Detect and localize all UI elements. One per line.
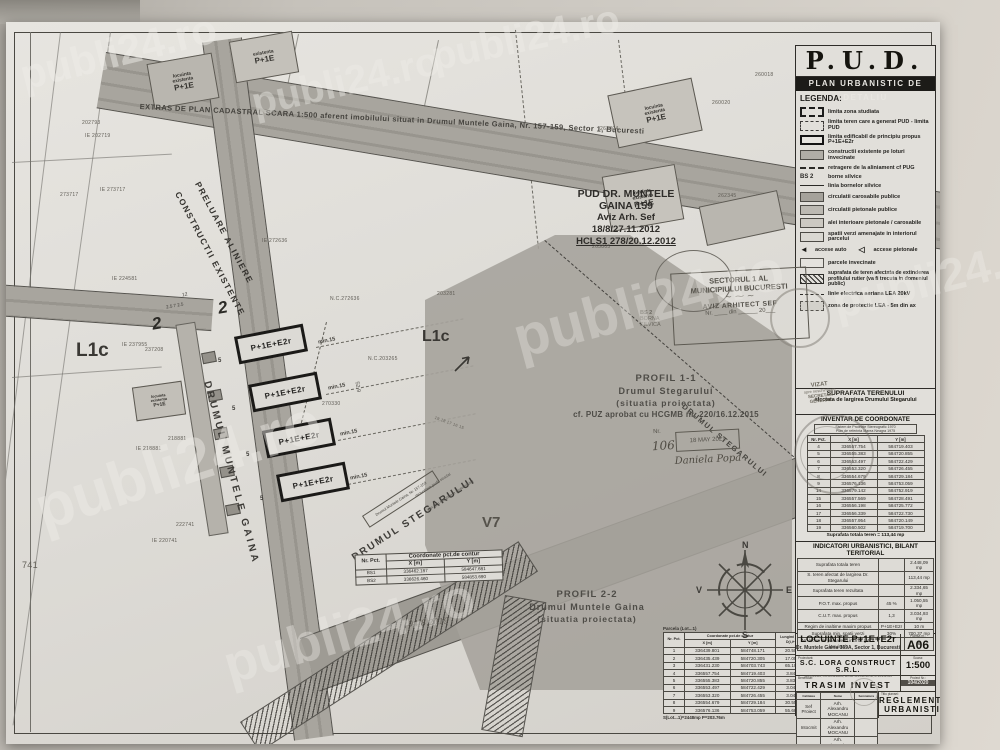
legend-item: alei interioare pietonale / carosabile: [796, 218, 935, 228]
table-cell: 45 %: [878, 597, 904, 610]
table-cell: 584720.855: [730, 677, 776, 684]
table-cell: 336555.383: [685, 677, 731, 684]
table-cell: 5: [664, 677, 685, 684]
table-row: P.O.T. max. propus45 %1.050,55 mp: [798, 597, 934, 610]
profile-dim-12: 12: [182, 292, 189, 299]
profil-line: Drumul Muntele Gaina: [492, 601, 682, 613]
legend-label: zona de protectie LEA - 5m din ax: [828, 303, 916, 309]
scara-value: 1:500: [901, 660, 935, 671]
table-cell: 584753.059: [730, 707, 776, 714]
setback-dim: 5: [260, 496, 263, 502]
plan-sheet: locuinta existenta P+1E existenta P+1E l…: [6, 22, 940, 744]
legend-label: alei interioare pietonale / carosabile: [828, 220, 921, 226]
round-stamp: [850, 678, 878, 706]
table-cell: 336576.136: [685, 707, 731, 714]
parcel-number: IE 273717: [100, 187, 126, 193]
profil-line: (situatia proiectata): [492, 613, 682, 625]
legend-symbol-solid-line: [800, 185, 824, 186]
round-stamp: [800, 426, 854, 480]
table-cell: [878, 571, 904, 584]
table-cell: 336626.460: [387, 574, 445, 583]
table-cell: 4: [664, 670, 685, 677]
plansa-number: A06: [901, 638, 935, 652]
legend-label: circulatii pietonale publice: [828, 207, 897, 213]
table-row: 6336553.497584722.4293.040: [664, 684, 809, 691]
existing-label: P+1E: [153, 402, 166, 409]
table-cell: 584722.429: [730, 684, 776, 691]
table-cell: 10 m: [905, 623, 934, 630]
table-cell: 584719.403: [730, 670, 776, 677]
parcel-number: 237208: [145, 347, 164, 353]
table-row: 1336439.801584748.17120.506: [664, 647, 809, 654]
parcel-number: N.C.272636: [330, 296, 360, 302]
compass-e: E: [786, 585, 792, 595]
table-row: 3336431.230584703.74365.108: [664, 662, 809, 669]
table-cell: 336556.339: [830, 510, 877, 517]
table-row: S. teren afectat de largirea Dr. Stegaru…: [798, 571, 934, 584]
legend-label: limita zona studiata: [828, 109, 879, 115]
table-cell: 584753.059: [877, 480, 924, 487]
table-cell: P.O.T. max. propus: [798, 597, 879, 610]
legend-item: BS 2borne silvice: [796, 174, 935, 180]
proposed-building-label: P+1E+E2r: [250, 336, 292, 353]
parcel-number: N.C.203265: [368, 356, 398, 362]
zone-label-v7: V7: [482, 514, 500, 531]
parcel-number: 203281: [437, 291, 456, 297]
parcel-number: 273717: [60, 192, 79, 198]
indicatori-section: INDICATORI URBANISTICI, BILANT TERITORIA…: [796, 542, 935, 634]
setback-dim: 5: [246, 452, 249, 458]
table-cell: 3: [664, 662, 685, 669]
parcel-number: 263804: [600, 126, 619, 132]
legend-label: linie electrica aeriana LEA 20kV: [828, 291, 910, 297]
profil-line: (situatia proiectata): [546, 397, 786, 409]
table-cell: 584720.305: [730, 655, 776, 662]
photo-corner-shadow: [0, 0, 140, 24]
col-header: Nr. Pct.: [355, 554, 386, 570]
table-row: Suprafata teren rezultata2.334,65 mp: [798, 584, 934, 597]
parcel-number: 270330: [322, 401, 341, 407]
table-cell: Arh. Alexandru MOCANU: [821, 700, 855, 718]
table-cell: C.U.T. max. propus: [798, 610, 879, 623]
compass-v: V: [696, 585, 702, 595]
legend-symbol-road: [800, 192, 824, 202]
table-cell: 584725.772: [877, 502, 924, 509]
parcela-table-footer: S(Lot...1)=2448mp P=203.76m: [663, 715, 809, 720]
table-cell: 336553.320: [685, 692, 731, 699]
table-row: 8336554.679584729.18430.550: [664, 699, 809, 706]
legend-label: spatii verzi amenajate in interiorul par…: [828, 232, 931, 244]
existing-label: P+1E: [254, 55, 274, 64]
table-cell: 2.334,65 mp: [905, 584, 934, 597]
table-cell: Suprafata totala teren: [798, 559, 879, 572]
setback-dim: 5: [218, 358, 221, 364]
table-cell: 336557.569: [830, 495, 877, 502]
legend-item: limita zona studiata: [796, 107, 935, 117]
borna-silvica-note: BS 2 BORNA SILVICA: [640, 310, 661, 328]
parcel-number: 218881: [168, 436, 187, 442]
legend-item: suprafata de teren afectata de extindere…: [796, 271, 935, 288]
table-cell: 584720.855: [877, 450, 924, 457]
parcel-number: IE 220741: [152, 538, 178, 544]
table-cell: 113,44 mp: [905, 571, 934, 584]
table-row: IntocmitArh. Alexandru MOCANU: [797, 718, 878, 736]
legend-label: linia bornelor silvice: [828, 183, 881, 189]
table-cell: 584703.743: [730, 662, 776, 669]
car-access-arrow-icon: ◄: [800, 246, 811, 254]
pud-subtitle-bar: PLAN URBANISTIC DE DETALIU: [796, 77, 935, 91]
table-cell: Suprafata teren rezultata: [798, 584, 879, 597]
pud-note-line: 18/8/27.11.2012: [538, 224, 714, 236]
table-row: Regim de inaltime maxim propusP+1E+E2r10…: [798, 623, 934, 630]
col-header: Calitatea: [797, 693, 821, 700]
legend-title: LEGENDA:: [796, 92, 935, 103]
sheet-margin-line: [30, 32, 31, 732]
table-cell: 6: [664, 684, 685, 691]
table-row: 9336576.136584753.05955.687: [664, 707, 809, 714]
parcel-number: IE 202719: [85, 133, 111, 139]
legend-section: LEGENDA: limita zona studiata limita ter…: [796, 91, 935, 389]
table-cell: S. teren afectat de largirea Dr. Stegaru…: [798, 571, 879, 584]
legend-symbol-bs2: BS 2: [800, 174, 824, 180]
table-cell: 336554.679: [685, 699, 731, 706]
direction-arrow-icon: [452, 352, 474, 374]
parcel-number: IE 218881: [136, 446, 162, 452]
table-cell: 19: [807, 524, 830, 531]
profil-line: Drumul Stegarului: [546, 385, 786, 397]
table-cell: P+1E+E2r: [878, 623, 904, 630]
table-cell: Arh. Alexandru MOCANU: [821, 718, 855, 736]
table-cell: 336557.754: [685, 670, 731, 677]
table-cell: 18: [807, 517, 830, 524]
parcel-number: 260020: [712, 100, 731, 106]
table-cell: 584853.690: [445, 572, 503, 581]
table-row: Suprafata totala teren2.448,09 mp: [798, 559, 934, 572]
compass-rose: N S E V: [695, 538, 795, 638]
parcel-number: IE 272636: [262, 238, 288, 244]
col-header: Nr. Pct.: [664, 633, 685, 648]
drawing-title-line1: REGLEMENTARI: [879, 696, 940, 705]
stamp-nr-label: Nr.: [653, 429, 661, 435]
legend-item: ◄accese auto◁accese pietonale: [796, 246, 935, 254]
table-cell: 7: [664, 692, 685, 699]
legend-symbol-green: [800, 232, 824, 242]
legend-item: limita edificabil de principiu propus P+…: [796, 135, 935, 147]
stamp-signature: Daniela Popa: [674, 453, 741, 467]
table-cell: 9: [664, 707, 685, 714]
legend-label: retragere de la aliniament cf PUG: [828, 165, 915, 171]
drawing-title-line2: URBANISTICE: [879, 705, 940, 714]
parcel-number: 202793: [82, 120, 101, 126]
table-cell: Desenat: [797, 736, 821, 744]
legend-label: constructii existente pe loturi invecina…: [828, 149, 931, 161]
legend-item: linia bornelor silvice: [796, 183, 935, 189]
legend-label: parcele invecinate: [828, 260, 876, 266]
bs-coordinate-table: Nr. Pct. Coordonate pct.de contur X [m] …: [355, 549, 504, 585]
parcel-number: 260018: [755, 72, 774, 78]
table-cell: 8: [664, 699, 685, 706]
table-cell: 17: [807, 510, 830, 517]
table-cell: 1.050,55 mp: [905, 597, 934, 610]
pud-note-line: Aviz Arh. Sef: [538, 212, 714, 224]
table-cell: 584748.171: [730, 647, 776, 654]
existing-label: P+1E: [174, 82, 194, 91]
table-cell: 15: [807, 495, 830, 502]
col-header: X [m]: [685, 640, 731, 647]
col-header: Y [m]: [730, 640, 776, 647]
table-row: 15336557.569584728.491: [807, 495, 924, 502]
registration-stamp: Nr. 106 18 MAY 2021 Daniela Popa: [650, 409, 775, 485]
legend-label: accese pietonale: [874, 247, 918, 253]
table-cell: 336435.439: [685, 655, 731, 662]
stamp-date-box: 18 MAY 2021: [675, 429, 740, 452]
legend-label: accese auto: [815, 247, 847, 253]
legend-panel: P.U.D. PLAN URBANISTIC DE DETALIU LEGEND…: [795, 45, 936, 716]
pud-note-line: GAINA 159: [538, 200, 714, 212]
legend-symbol-dashed: [800, 121, 824, 131]
inventar-footer: Suprafata totala teren = 113,44 mp: [796, 533, 935, 538]
legend-label: circulatii carosabile publice: [828, 194, 900, 200]
round-stamp: [770, 288, 830, 348]
proposed-building-label: P+1E+E2r: [264, 384, 306, 401]
table-cell: 584720.149: [877, 517, 924, 524]
scanned-plan-photo: locuinta existenta P+1E existenta P+1E l…: [0, 0, 1000, 750]
table-cell: [878, 559, 904, 572]
table-cell: 1,3: [878, 610, 904, 623]
existing-label: P+1E: [646, 114, 667, 124]
legend-item: retragere de la aliniament cf PUG: [796, 165, 935, 171]
table-cell: 1: [664, 647, 685, 654]
parcel-number: 262345: [718, 193, 737, 199]
table-row: 7336553.320584726.4553.040: [664, 692, 809, 699]
table-cell: [855, 718, 878, 736]
pud-title: P.U.D.: [796, 46, 935, 77]
parcel-number: IE 237955: [122, 342, 148, 348]
legend-symbol-dash-line: [800, 167, 824, 169]
existing-building: locuinta existenta P+1E: [132, 381, 186, 422]
table-row: 17336556.339584722.730: [807, 510, 924, 517]
table-cell: 584729.184: [877, 473, 924, 480]
legend-label: limita edificabil de principiu propus P+…: [828, 135, 931, 147]
table-row: 2336435.439584720.30517.059: [664, 655, 809, 662]
proiectant-name: S.C. LORA CONSTRUCT S.R.L.: [796, 660, 900, 674]
table-cell: 336557.954: [830, 517, 877, 524]
table-row: 5336555.383584720.8553.836: [664, 677, 809, 684]
table-row: 16336556.198584725.772: [807, 502, 924, 509]
col-header: Y [m]: [877, 436, 924, 443]
legend-item: circulatii pietonale publice: [796, 205, 935, 215]
table-row: C.U.T. max. propus1,33.034,93 mp: [798, 610, 934, 623]
legend-label: limita teren care a generat PUD - limita…: [828, 120, 931, 132]
table-cell: 584726.455: [730, 692, 776, 699]
legend-symbol-bold-box: [800, 135, 824, 145]
compass-s: S: [742, 630, 748, 638]
legend-item: parcele invecinate: [796, 258, 935, 268]
table-cell: 336431.230: [685, 662, 731, 669]
profil-line: PROFIL 1-1: [546, 372, 786, 385]
compass-n: N: [742, 540, 749, 550]
table-cell: 584752.919: [877, 487, 924, 494]
table-cell: [878, 584, 904, 597]
table-cell: 16: [807, 502, 830, 509]
table-cell: 584722.429: [877, 458, 924, 465]
table-cell: 336560.502: [830, 524, 877, 531]
pedestrian-access-arrow-icon: ◁: [859, 246, 870, 254]
project-name: LOCUINTE P+1E+E2r: [796, 634, 900, 645]
table-row: DesenatArh. Alexandru MOCANU: [797, 736, 878, 744]
table-cell: 336556.198: [830, 502, 877, 509]
legend-symbol-dashed-bold: [800, 107, 824, 117]
table-cell: 584726.455: [877, 465, 924, 472]
proposed-building-label: P+1E+E2r: [292, 474, 334, 491]
setback-dim: 5: [232, 406, 235, 412]
legend-label: suprafata de teren afectata de extindere…: [828, 271, 931, 288]
legend-item: circulatii carosabile publice: [796, 192, 935, 202]
table-cell: 2.448,09 mp: [905, 559, 934, 572]
parcela-table: Parcela (Lot...1) Nr. Pct. Coordonate pc…: [663, 626, 809, 720]
project-address: Dr. Muntele Gaina 169A, Sector 1, Bucure…: [796, 645, 900, 651]
table-cell: 584719.700: [877, 524, 924, 531]
table-cell: 584728.491: [877, 495, 924, 502]
pud-note-line: HCLS1 278/20.12.2012: [538, 236, 714, 248]
borna-line: SILVICA: [640, 322, 661, 328]
parcel-number: IE 224581: [112, 276, 138, 282]
pud-note-block: PUD DR. MUNTELE GAINA 159 Aviz Arh. Sef …: [538, 188, 714, 248]
legend-label: borne silvice: [828, 174, 862, 180]
zone-label-l1c: L1c: [76, 340, 109, 362]
parcel-number: 222741: [176, 522, 195, 528]
proiect-number: 104/2020: [901, 680, 935, 686]
table-cell: 584722.730: [877, 510, 924, 517]
table-cell: Sef Proiect: [797, 700, 821, 718]
legend-item: limita teren care a generat PUD - limita…: [796, 120, 935, 132]
parcel-number: 741: [22, 560, 38, 570]
table-cell: 584729.184: [730, 699, 776, 706]
indicatori-title: INDICATORI URBANISTICI, BILANT TERITORIA…: [796, 543, 935, 557]
proposed-building-label: P+1E+E2r: [278, 430, 320, 447]
table-cell: 584719.403: [877, 443, 924, 450]
stamp-nr-value: 106: [652, 438, 676, 453]
table-cell: 336553.497: [685, 684, 731, 691]
table-row: 19336560.502584719.700: [807, 524, 924, 531]
table-cell: 3.034,93 mp: [905, 610, 934, 623]
profil-line: PROFIL 2-2: [492, 588, 682, 601]
parcel-number: 263805: [592, 244, 611, 250]
table-cell: [855, 736, 878, 744]
legend-item: constructii existente pe loturi invecina…: [796, 149, 935, 161]
legend-symbol-alley: [800, 218, 824, 228]
table-cell: 336439.801: [685, 647, 731, 654]
table-cell: BS2: [356, 576, 387, 584]
legend-item: spatii verzi amenajate in interiorul par…: [796, 232, 935, 244]
table-cell: Intocmit: [797, 718, 821, 736]
legend-symbol-pedestrian: [800, 205, 824, 215]
table-cell: Regim de inaltime maxim propus: [798, 623, 879, 630]
zone-label-l1c: L1c: [422, 328, 450, 346]
table-row: 4336557.754584719.4033.840: [664, 670, 809, 677]
legend-symbol-gray-box: [800, 150, 824, 160]
table-cell: Arh. Alexandru MOCANU: [821, 736, 855, 744]
pud-note-line: PUD DR. MUNTELE: [538, 188, 714, 200]
table-row: 18336557.954584720.149: [807, 517, 924, 524]
table-cell: 2: [664, 655, 685, 662]
profil-2-2-block: PROFIL 2-2 Drumul Muntele Gaina (situati…: [492, 588, 682, 625]
